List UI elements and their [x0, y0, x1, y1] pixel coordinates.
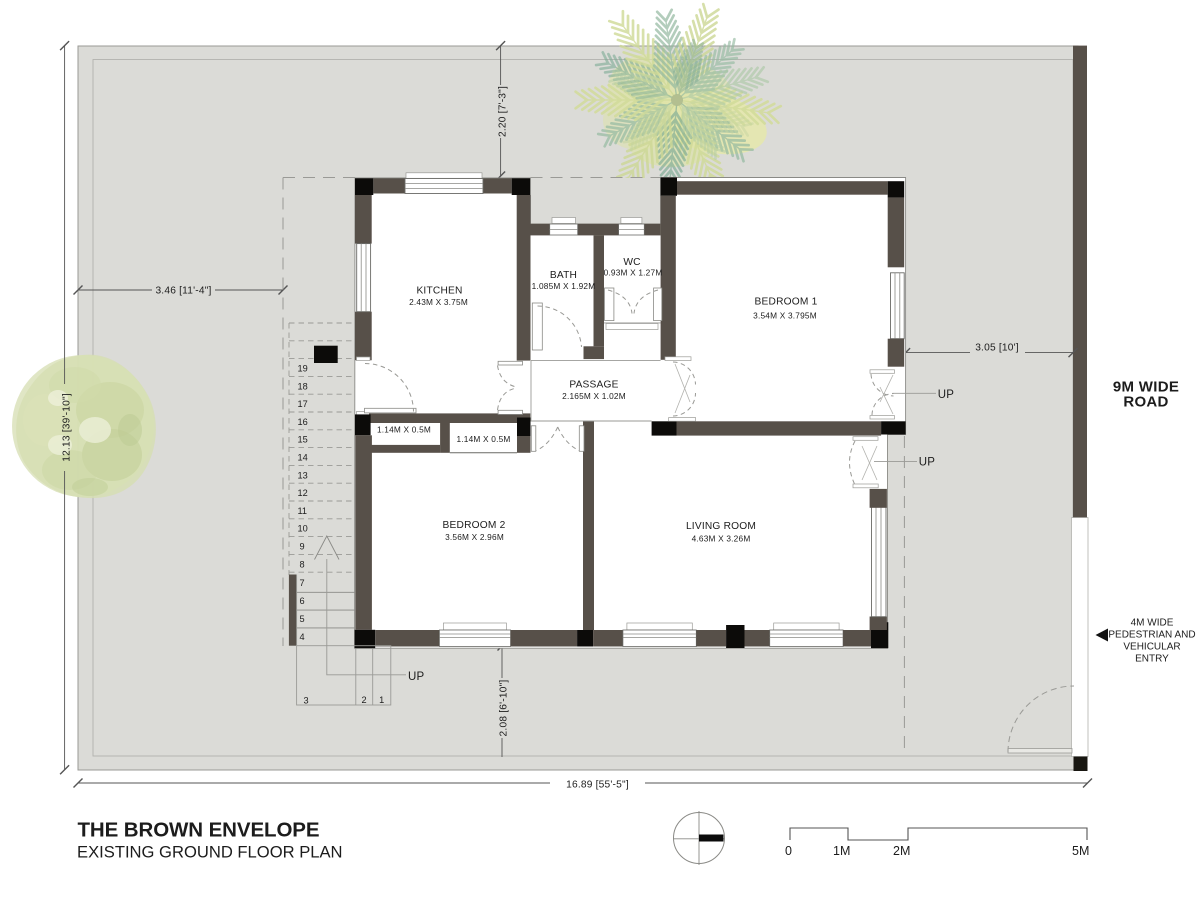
svg-text:UP: UP — [408, 671, 425, 683]
svg-text:PASSAGE: PASSAGE — [569, 380, 618, 391]
svg-text:15: 15 — [298, 435, 308, 445]
svg-text:UP: UP — [938, 389, 955, 401]
svg-text:6: 6 — [300, 596, 305, 606]
svg-text:12.13 [39'-10"]: 12.13 [39'-10"] — [62, 393, 73, 462]
svg-text:5: 5 — [300, 614, 305, 624]
svg-text:BEDROOM 1: BEDROOM 1 — [755, 297, 818, 308]
svg-text:17: 17 — [298, 399, 308, 409]
svg-text:1.14M X 0.5M: 1.14M X 0.5M — [377, 424, 431, 434]
svg-text:BEDROOM 2: BEDROOM 2 — [443, 520, 506, 531]
svg-text:2: 2 — [361, 695, 366, 705]
svg-text:3.56M X 2.96M: 3.56M X 2.96M — [445, 532, 504, 542]
svg-text:14: 14 — [298, 453, 308, 463]
svg-text:4M WIDE: 4M WIDE — [1131, 618, 1174, 629]
svg-text:16.89 [55'-5"]: 16.89 [55'-5"] — [566, 780, 629, 791]
svg-text:4: 4 — [300, 632, 305, 642]
svg-text:2.43M X 3.75M: 2.43M X 3.75M — [409, 297, 468, 307]
svg-text:2.20 [7'-3"]: 2.20 [7'-3"] — [498, 86, 509, 137]
svg-text:THE BROWN ENVELOPE: THE BROWN ENVELOPE — [78, 819, 320, 842]
svg-text:0: 0 — [785, 844, 792, 858]
svg-text:3.46 [11'-4"]: 3.46 [11'-4"] — [155, 286, 211, 297]
svg-text:PEDESTRIAN AND: PEDESTRIAN AND — [1108, 630, 1195, 641]
svg-text:UP: UP — [919, 457, 936, 469]
svg-text:18: 18 — [298, 381, 308, 391]
svg-text:0.93M X 1.27M: 0.93M X 1.27M — [604, 267, 663, 277]
svg-text:5M: 5M — [1072, 844, 1089, 858]
svg-text:4.63M X 3.26M: 4.63M X 3.26M — [692, 534, 751, 544]
svg-text:2.165M X 1.02M: 2.165M X 1.02M — [562, 391, 626, 401]
svg-text:ROAD: ROAD — [1123, 394, 1168, 411]
svg-text:13: 13 — [298, 470, 308, 480]
svg-text:2.08 [6'-10"]: 2.08 [6'-10"] — [499, 680, 510, 737]
svg-text:11: 11 — [298, 506, 308, 516]
svg-text:KITCHEN: KITCHEN — [416, 286, 462, 297]
svg-text:10: 10 — [298, 524, 308, 534]
svg-text:3.05 [10']: 3.05 [10'] — [975, 343, 1019, 354]
svg-text:16: 16 — [298, 417, 308, 427]
svg-text:VEHICULAR: VEHICULAR — [1123, 642, 1180, 653]
svg-text:3.54M X 3.795M: 3.54M X 3.795M — [753, 311, 817, 321]
svg-text:1.14M X 0.5M: 1.14M X 0.5M — [456, 434, 510, 444]
svg-text:12: 12 — [298, 488, 308, 498]
svg-text:1M: 1M — [833, 844, 850, 858]
svg-text:7: 7 — [300, 578, 305, 588]
svg-text:2M: 2M — [893, 844, 910, 858]
svg-text:BATH: BATH — [550, 270, 577, 281]
svg-text:19: 19 — [298, 364, 308, 374]
svg-text:EXISTING GROUND FLOOR PLAN: EXISTING GROUND FLOOR PLAN — [77, 843, 343, 862]
svg-text:1: 1 — [379, 695, 384, 705]
svg-text:1.085M X 1.92M: 1.085M X 1.92M — [532, 281, 596, 291]
svg-text:9: 9 — [300, 542, 305, 552]
svg-text:3: 3 — [304, 696, 309, 706]
svg-text:LIVING ROOM: LIVING ROOM — [686, 521, 756, 532]
svg-text:ENTRY: ENTRY — [1135, 654, 1169, 665]
svg-text:8: 8 — [300, 559, 305, 569]
